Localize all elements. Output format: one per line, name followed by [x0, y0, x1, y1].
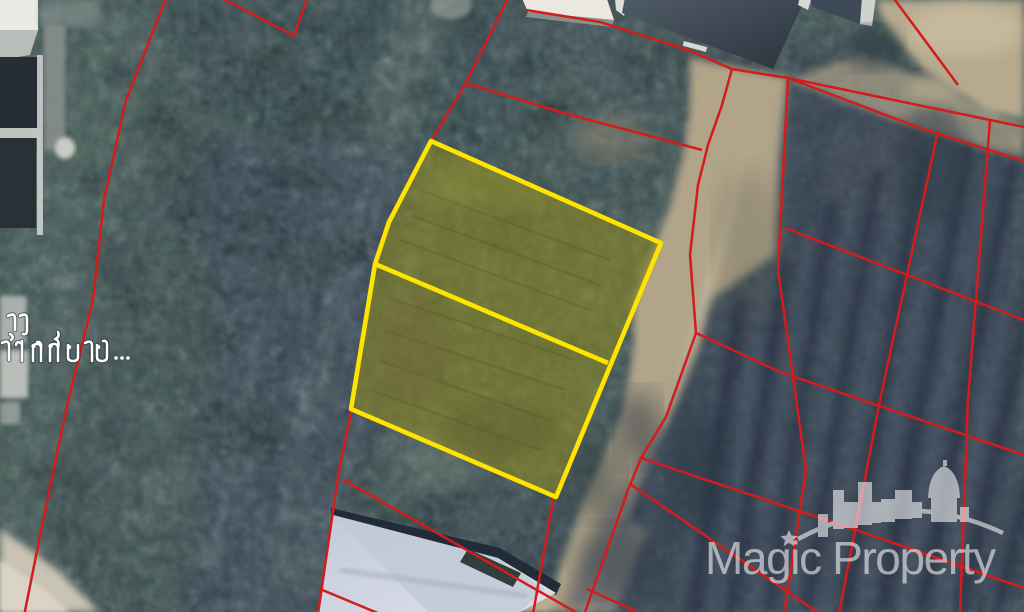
svg-text:Magic Property: Magic Property	[705, 532, 996, 584]
